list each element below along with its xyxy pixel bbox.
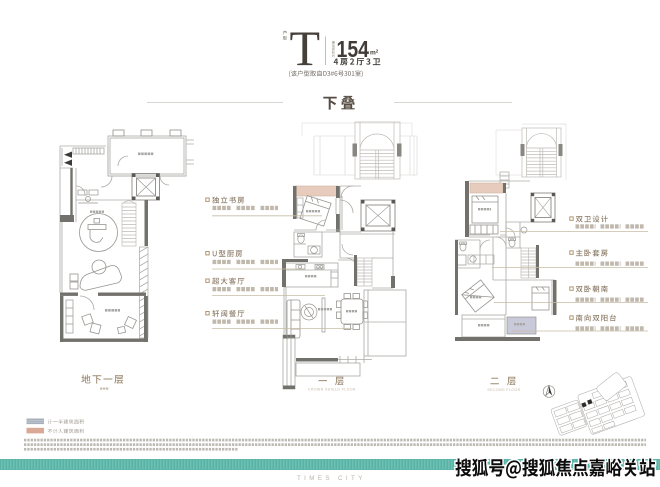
svg-text:SECOND FLOOR: SECOND FLOOR — [487, 388, 520, 392]
svg-text:CROWN SHIELD FLOOR: CROWN SHIELD FLOOR — [308, 388, 356, 392]
svg-text:m2: m2 — [370, 49, 379, 57]
svg-text:TIMES CITY: TIMES CITY — [297, 475, 366, 482]
svg-text:T: T — [290, 20, 321, 76]
